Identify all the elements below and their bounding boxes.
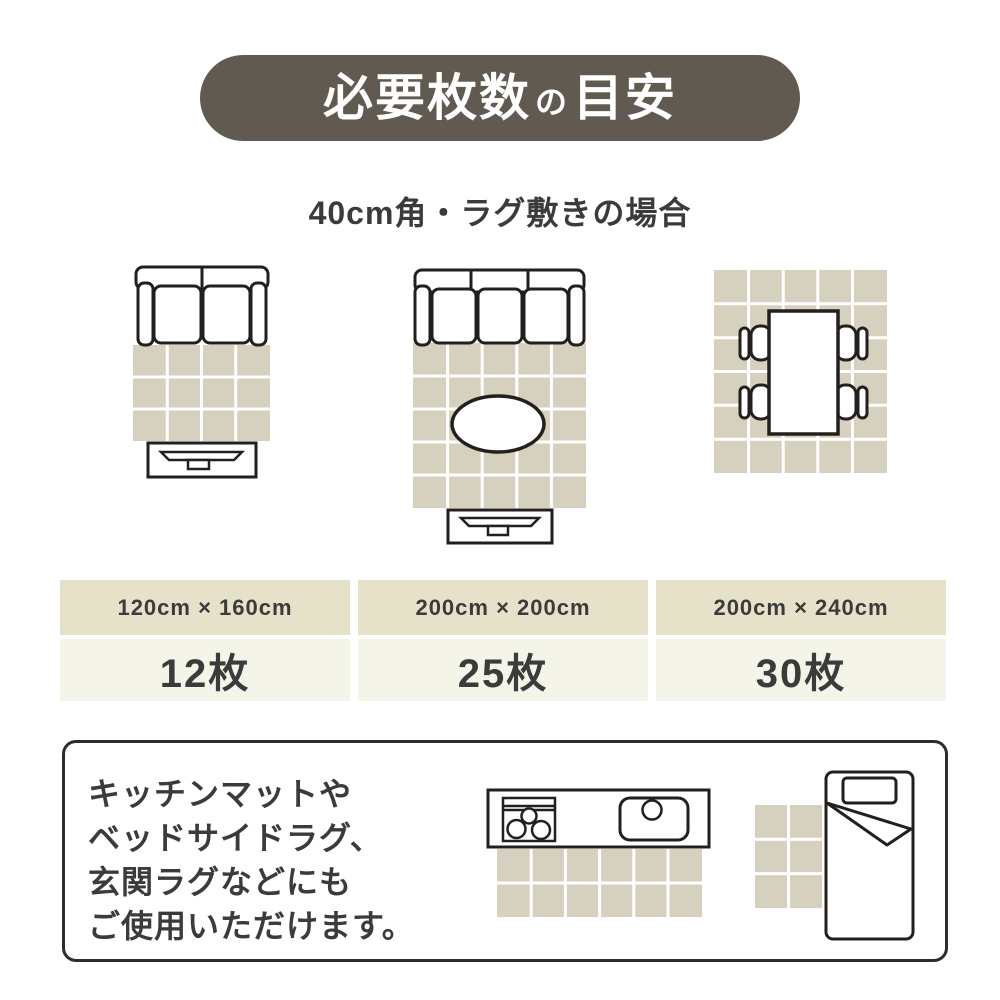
- illustration-bedside-mat: [750, 765, 920, 945]
- dining-table-icon: [769, 311, 838, 434]
- two-seat-sofa-icon: [136, 267, 268, 345]
- dining-chair-icon: [740, 385, 771, 419]
- kitchen-mat-grid-6x2: [497, 849, 702, 917]
- illustration-three-seat-sofa-rug: [405, 253, 605, 553]
- size-value-cell: 30枚: [656, 639, 946, 701]
- title-segment: 目安: [573, 73, 677, 123]
- size-header-cell: 120cm × 160cm: [60, 580, 350, 635]
- note-text-line: キッチンマットや: [88, 772, 415, 816]
- illustration-two-seat-sofa-rug: [100, 253, 305, 488]
- note-text-line: ご使用いただけます。: [88, 904, 415, 948]
- three-seat-sofa-icon: [415, 270, 584, 345]
- title-segment: 必要枚数: [323, 73, 531, 123]
- title-segment: の: [531, 86, 573, 118]
- dining-chair-icon: [836, 326, 867, 360]
- subtitle: 40cm角・ラグ敷きの場合: [0, 188, 1000, 234]
- illustration-kitchen-mat: [485, 785, 715, 920]
- note-text-line: ベッドサイドラグ、: [88, 816, 415, 860]
- title-banner: 必要枚数 の 目安: [200, 55, 800, 141]
- illustration-dining-table-rug: [710, 265, 895, 480]
- bedside-mat-grid-2x3: [755, 805, 822, 908]
- size-header-cell: 200cm × 200cm: [358, 580, 648, 635]
- sink-icon: [620, 798, 688, 840]
- tv-board-icon: [148, 443, 256, 477]
- dining-chair-icon: [836, 385, 867, 419]
- size-table: 120cm × 160cm 200cm × 200cm 200cm × 240c…: [60, 580, 946, 701]
- rug-grid-4x3: [133, 345, 270, 441]
- dining-chair-icon: [740, 326, 771, 360]
- size-value-cell: 12枚: [60, 639, 350, 701]
- stove-icon: [503, 798, 555, 841]
- note-text: キッチンマットや ベッドサイドラグ、 玄関ラグなどにも ご使用いただけます。: [88, 772, 415, 948]
- oval-table-icon: [452, 396, 544, 452]
- page-canvas: 必要枚数 の 目安 40cm角・ラグ敷きの場合: [0, 0, 1000, 1000]
- note-text-line: 玄関ラグなどにも: [88, 860, 415, 904]
- tv-board-icon: [448, 510, 552, 543]
- page-title: 必要枚数 の 目安: [323, 73, 677, 123]
- size-value-cell: 25枚: [358, 639, 648, 701]
- pillow-icon: [843, 778, 896, 803]
- size-header-cell: 200cm × 240cm: [656, 580, 946, 635]
